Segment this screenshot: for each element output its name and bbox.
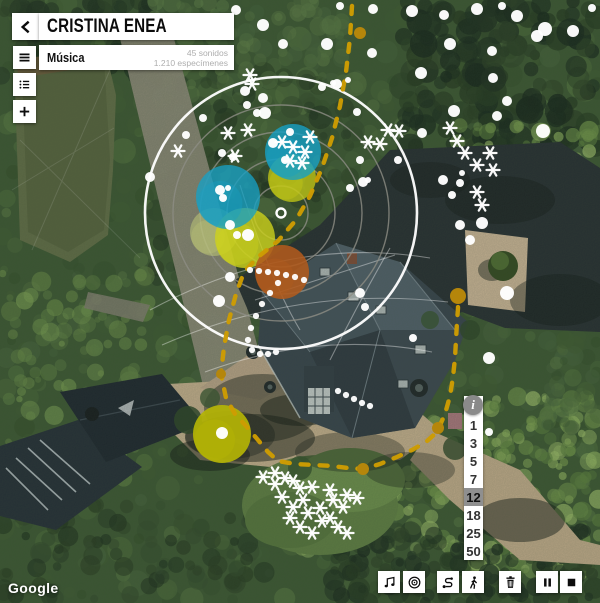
level-scale: 135712182550 bbox=[464, 396, 483, 560]
pause-icon bbox=[540, 575, 555, 590]
back-chevron-icon bbox=[18, 19, 34, 35]
pause-button[interactable] bbox=[536, 571, 558, 593]
sounds-count: 45 sonidos bbox=[154, 48, 228, 58]
sound-overlay bbox=[0, 0, 600, 603]
stop-button[interactable] bbox=[560, 571, 582, 593]
add-button[interactable] bbox=[13, 100, 36, 123]
route-icon bbox=[441, 575, 456, 590]
trash-button[interactable] bbox=[499, 571, 521, 593]
scale-level-5[interactable]: 5 bbox=[464, 452, 483, 470]
listener-position bbox=[277, 209, 286, 218]
list-icon bbox=[17, 77, 32, 92]
music-button[interactable] bbox=[378, 571, 400, 593]
list-button[interactable] bbox=[13, 73, 36, 96]
plus-icon bbox=[17, 104, 32, 119]
walking-person-icon bbox=[466, 575, 481, 590]
page-title: CRISTINA ENEA bbox=[47, 16, 167, 38]
walk-button[interactable] bbox=[462, 571, 484, 593]
scale-level-50[interactable]: 50 bbox=[464, 542, 483, 560]
trash-icon bbox=[503, 575, 518, 590]
info-button[interactable]: i bbox=[463, 395, 483, 415]
scale-level-1[interactable]: 1 bbox=[464, 416, 483, 434]
level-scale-cells: 135712182550 bbox=[464, 416, 483, 560]
info-icon: i bbox=[471, 397, 475, 413]
menu-button[interactable] bbox=[13, 46, 36, 69]
stop-icon bbox=[564, 575, 579, 590]
layer-info-panel: Música 45 sonidos 1.210 especímenes bbox=[39, 45, 234, 70]
place-title-panel: CRISTINA ENEA bbox=[39, 13, 234, 40]
specimens-count: 1.210 especímenes bbox=[154, 58, 228, 68]
back-button[interactable] bbox=[12, 13, 39, 40]
app: CRISTINA ENEA Música 45 sonidos 1.210 es… bbox=[0, 0, 600, 603]
hamburger-icon bbox=[17, 50, 32, 65]
target-button[interactable] bbox=[403, 571, 425, 593]
route-button[interactable] bbox=[437, 571, 459, 593]
scale-level-3[interactable]: 3 bbox=[464, 434, 483, 452]
target-icon bbox=[407, 575, 422, 590]
scale-level-7[interactable]: 7 bbox=[464, 470, 483, 488]
scale-level-12[interactable]: 12 bbox=[464, 488, 483, 506]
stats-block: 45 sonidos 1.210 especímenes bbox=[154, 48, 228, 68]
google-watermark: Google bbox=[8, 580, 59, 596]
music-note-icon bbox=[382, 575, 397, 590]
scale-level-25[interactable]: 25 bbox=[464, 524, 483, 542]
layer-label: Música bbox=[47, 50, 84, 65]
scale-level-18[interactable]: 18 bbox=[464, 506, 483, 524]
